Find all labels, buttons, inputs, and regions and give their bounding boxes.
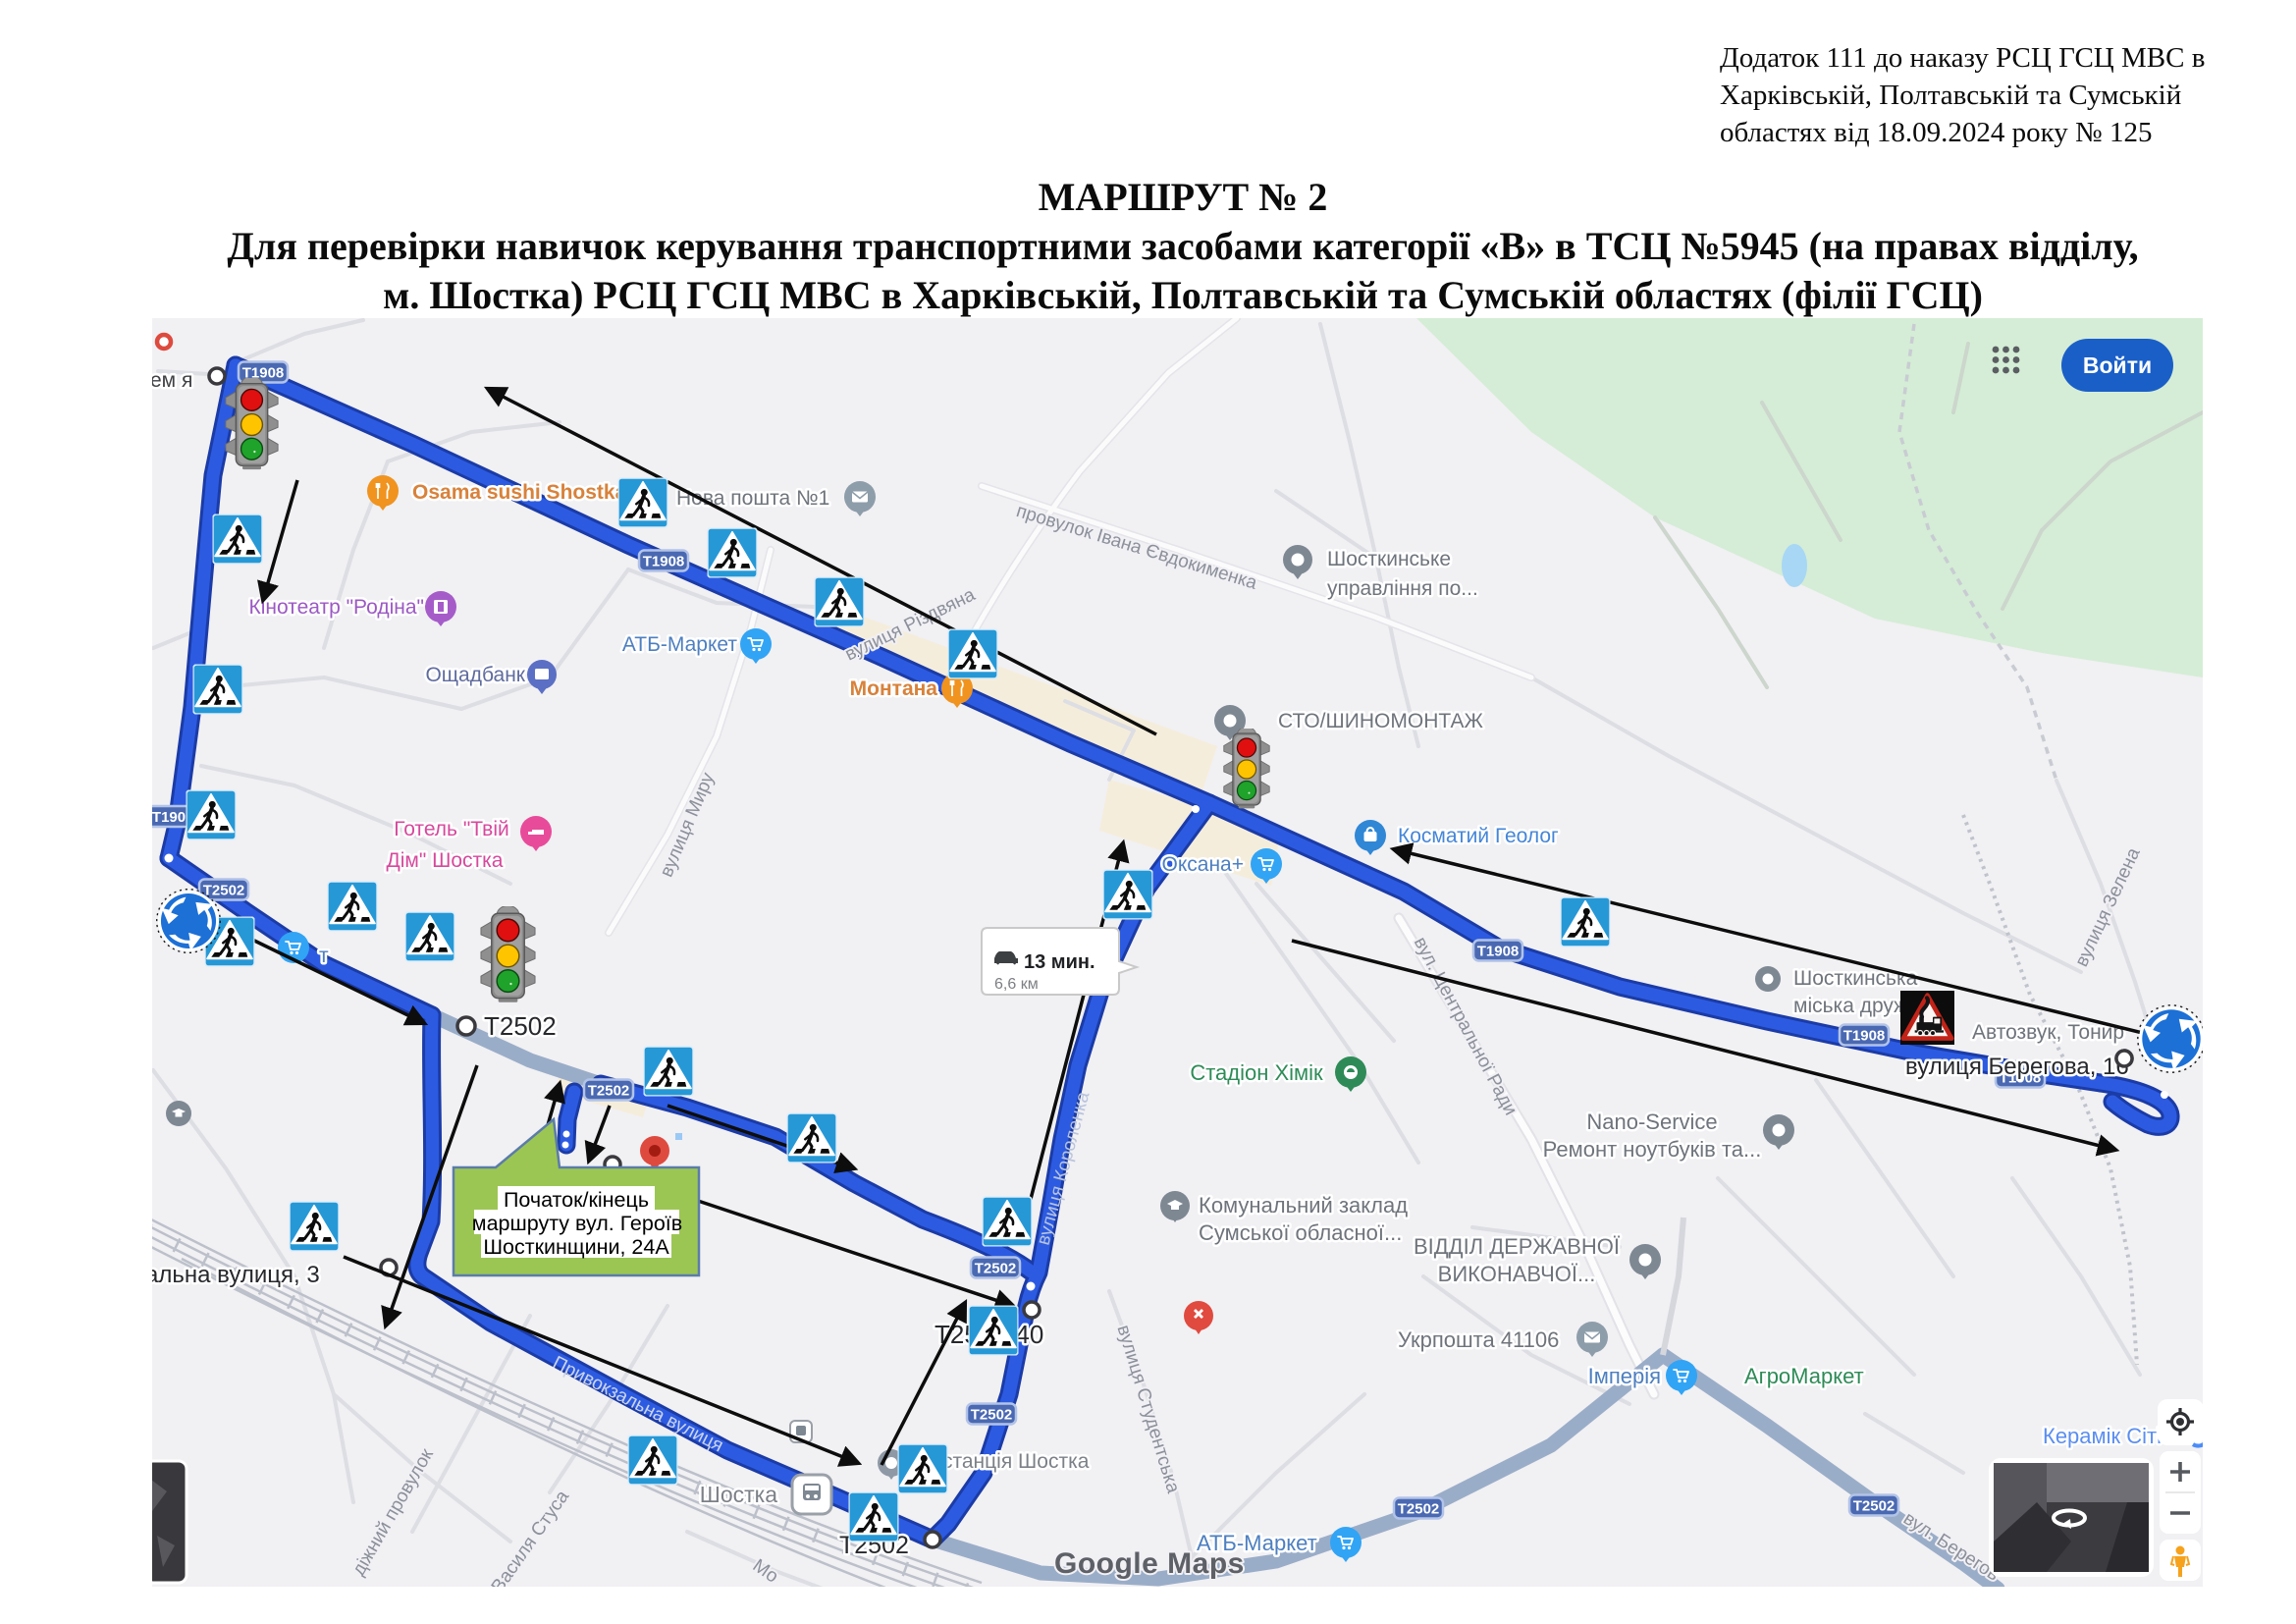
- svg-text:Комунальний заклад: Комунальний заклад: [1199, 1193, 1408, 1218]
- svg-text:маршруту вул. Героїв: маршруту вул. Героїв: [472, 1212, 682, 1235]
- svg-text:T190: T190: [152, 809, 186, 826]
- svg-text:Шосткинщини, 24А: Шосткинщини, 24А: [483, 1235, 669, 1259]
- svg-text:Nano-Service: Nano-Service: [1586, 1110, 1717, 1134]
- svg-text:T2502: T2502: [1853, 1498, 1896, 1515]
- svg-text:Шостка: Шостка: [700, 1482, 777, 1507]
- svg-text:T1908: T1908: [643, 554, 685, 570]
- svg-text:Косматий Геолог: Косматий Геолог: [1398, 825, 1559, 847]
- svg-text:T1908: T1908: [1477, 944, 1520, 960]
- svg-text:Дім" Шостка: Дім" Шостка: [387, 849, 504, 872]
- svg-text:T2502: T2502: [971, 1407, 1013, 1424]
- svg-text:АгроМаркет: АгроМаркет: [1744, 1364, 1864, 1388]
- svg-text:Керамік Сіті: Керамік Сіті: [2043, 1424, 2162, 1448]
- svg-text:Готель "Твій: Готель "Твій: [394, 818, 509, 840]
- svg-text:T2502: T2502: [1398, 1501, 1440, 1518]
- svg-text:Ощадбанк: Ощадбанк: [425, 664, 525, 686]
- svg-text:Войти: Войти: [2083, 352, 2152, 378]
- svg-text:станція Шостка: станція Шостка: [942, 1450, 1090, 1473]
- svg-text:T2502: T2502: [588, 1083, 630, 1100]
- svg-text:6,6 км: 6,6 км: [994, 976, 1039, 993]
- svg-text:АТБ-Маркет: АТБ-Маркет: [622, 633, 737, 656]
- svg-text:управління по...: управління по...: [1327, 577, 1478, 600]
- svg-text:Імперія: Імперія: [1588, 1364, 1661, 1388]
- svg-text:Оксана+: Оксана+: [1162, 853, 1244, 876]
- svg-text:13 мин.: 13 мин.: [1024, 951, 1095, 973]
- svg-text:ем я: ем я: [150, 369, 192, 392]
- svg-text:вулиця Берегова, 16: вулиця Берегова, 16: [1905, 1054, 2129, 1080]
- svg-text:Шосткинська: Шосткинська: [1793, 967, 1918, 990]
- svg-text:T2502: T2502: [975, 1261, 1017, 1277]
- svg-text:зальна вулиця, 3: зальна вулиця, 3: [134, 1262, 320, 1288]
- svg-text:T1908: T1908: [1843, 1028, 1886, 1045]
- svg-text:Google Maps: Google Maps: [1054, 1547, 1245, 1580]
- svg-text:Шосткинське: Шосткинське: [1327, 548, 1451, 570]
- svg-text:ВІДДІЛ ДЕРЖАВНОЇ: ВІДДІЛ ДЕРЖАВНОЇ: [1414, 1234, 1621, 1259]
- svg-text:Т2502: Т2502: [484, 1011, 557, 1041]
- svg-text:т: т: [319, 945, 329, 967]
- svg-text:Кінотеатр "Родіна": Кінотеатр "Родіна": [248, 596, 424, 619]
- svg-text:Початок/кінець: Початок/кінець: [504, 1188, 649, 1212]
- svg-text:СТО/ШИНОМОНТАЖ: СТО/ШИНОМОНТАЖ: [1278, 710, 1483, 732]
- svg-text:Укрпошта 41106: Укрпошта 41106: [1398, 1327, 1559, 1352]
- svg-text:Монтана: Монтана: [850, 677, 938, 700]
- svg-text:Стадіон Хімік: Стадіон Хімік: [1190, 1060, 1323, 1085]
- svg-text:Osama sushi Shostka: Osama sushi Shostka: [412, 481, 627, 504]
- svg-text:ВИКОНАВЧОЇ...: ВИКОНАВЧОЇ...: [1438, 1262, 1596, 1286]
- svg-text:Сумської обласної...: Сумської обласної...: [1199, 1220, 1402, 1245]
- svg-text:Ремонт ноутбуків та...: Ремонт ноутбуків та...: [1543, 1137, 1762, 1162]
